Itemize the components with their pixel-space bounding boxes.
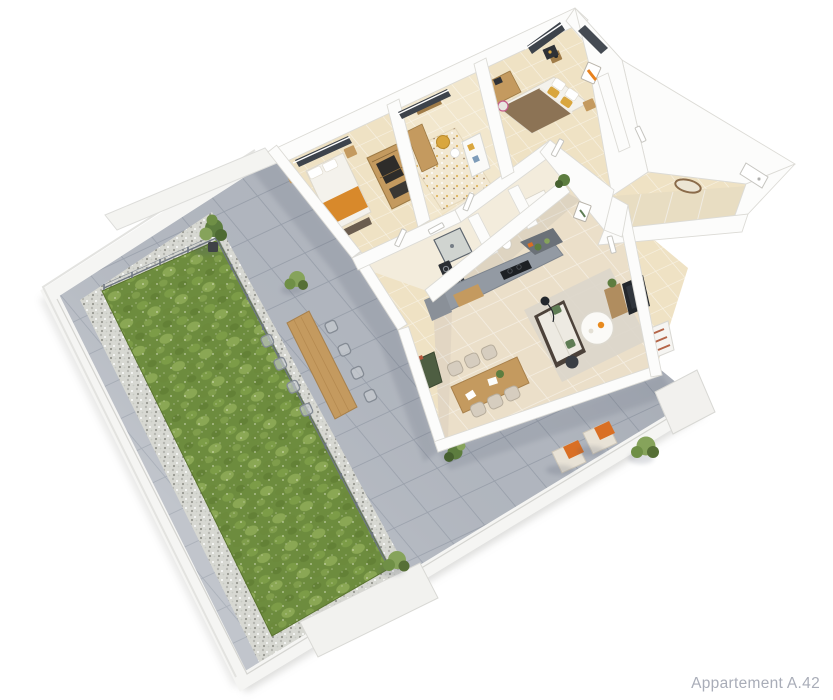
desk-chair: [498, 101, 508, 111]
counter-plant: [544, 238, 550, 244]
table-plant: [496, 370, 504, 378]
caption: Appartement A.42: [691, 675, 820, 693]
side-table: [566, 356, 579, 369]
floor-plan-render: [0, 0, 833, 700]
floor-plan-canvas: [0, 0, 833, 700]
fruit-bowl: [598, 322, 604, 328]
console-plant: [608, 279, 617, 288]
counter-plant: [535, 244, 542, 251]
coffee-table: [581, 312, 614, 345]
pouf: [451, 149, 460, 158]
kids-chair: [437, 136, 450, 149]
